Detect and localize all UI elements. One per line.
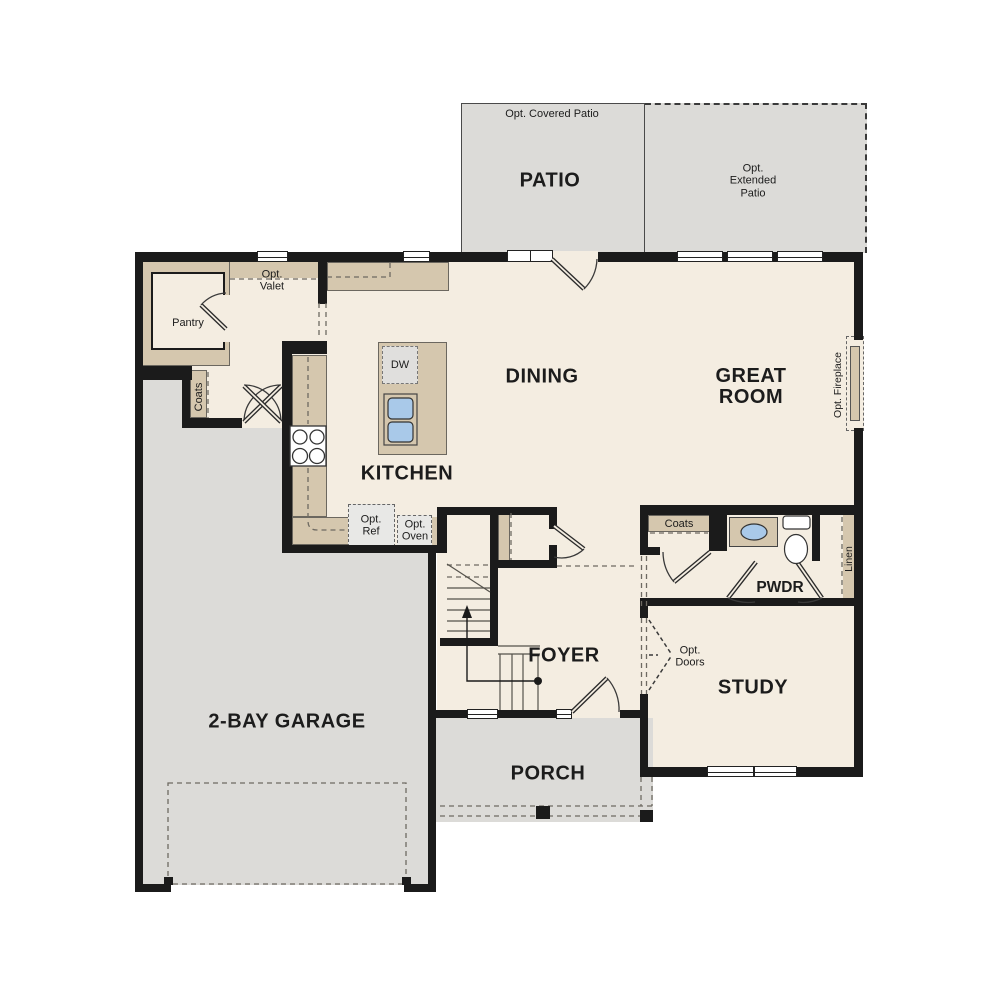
label-foyer: FOYER — [528, 645, 599, 668]
label-great-room: GREAT ROOM — [705, 366, 797, 408]
patio-door — [552, 259, 597, 289]
floor-plan: Opt. Covered Patio PATIO Opt. Extended P… — [0, 0, 1000, 1000]
label-opt-oven: Opt. Oven — [396, 519, 434, 544]
label-patio: PATIO — [520, 170, 581, 193]
porch-post-left — [536, 806, 550, 819]
label-opt-extended-patio: Opt. Extended Patio — [724, 163, 782, 200]
label-dining: DINING — [506, 366, 579, 389]
stair-closet-door — [554, 526, 584, 558]
pwdr-door — [728, 562, 756, 603]
label-pwdr: PWDR — [756, 579, 803, 597]
cooktop — [290, 426, 326, 466]
pwdr-sink — [741, 524, 767, 540]
label-kitchen: KITCHEN — [361, 463, 453, 486]
label-opt-covered-patio: Opt. Covered Patio — [505, 108, 599, 120]
label-opt-doors: Opt. Doors — [669, 645, 711, 670]
label-linen: Linen — [844, 546, 856, 572]
label-opt-valet: Opt. Valet — [254, 269, 290, 294]
stairs — [447, 564, 542, 710]
label-garage: 2-BAY GARAGE — [208, 711, 365, 734]
label-porch: PORCH — [511, 763, 586, 786]
toilet — [783, 516, 810, 564]
label-opt-fireplace: Opt. Fireplace — [833, 352, 845, 418]
stair-up-arrow — [462, 605, 472, 618]
island-sink — [384, 394, 417, 445]
label-coats-foyer: Coats — [665, 518, 694, 530]
label-dw: DW — [391, 359, 409, 371]
garage-door-outline — [164, 783, 411, 885]
linework-overlay — [0, 0, 1000, 1000]
label-opt-ref: Opt. Ref — [354, 514, 388, 539]
label-pantry: Pantry — [172, 317, 204, 329]
mudroom-garage-doors — [244, 385, 281, 422]
pantry-door — [201, 293, 226, 329]
porch-post-right — [640, 810, 653, 822]
dashed-details — [208, 263, 842, 694]
label-coats-mud: Coats — [193, 383, 205, 412]
coats-foyer-door — [663, 552, 710, 582]
front-door — [572, 678, 619, 712]
label-study: STUDY — [718, 677, 788, 700]
